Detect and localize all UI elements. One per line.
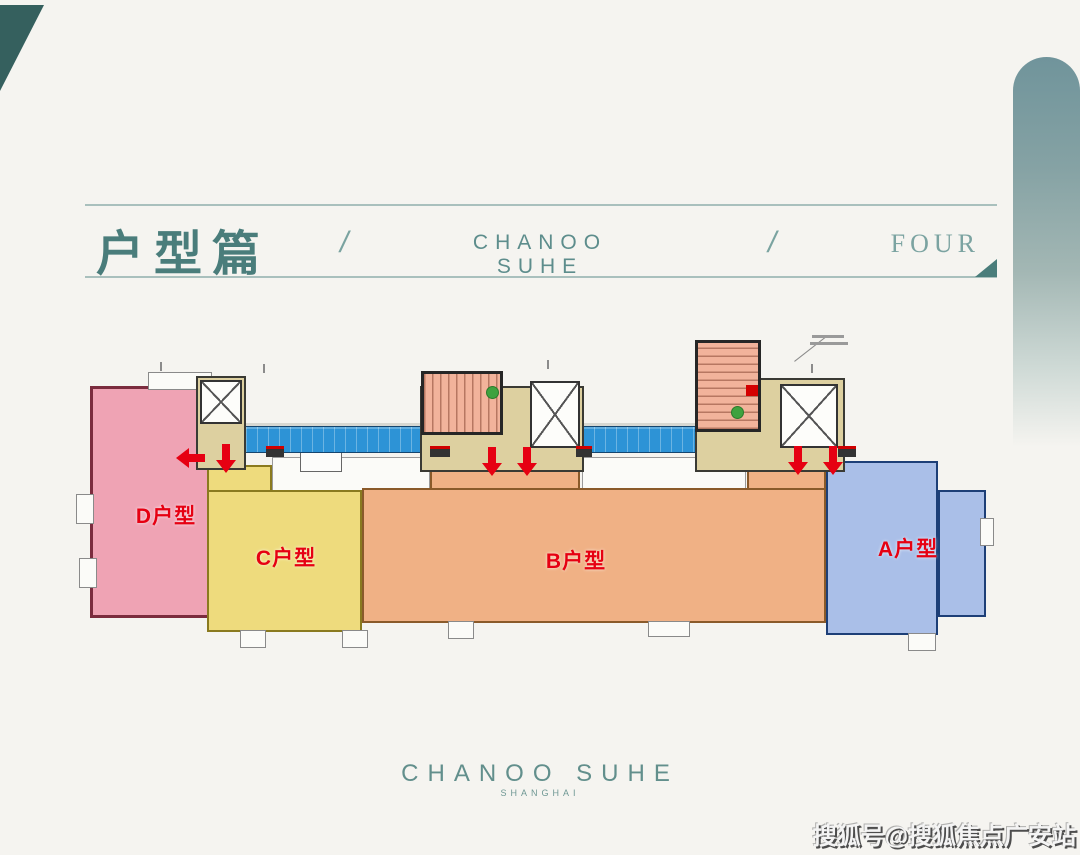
balcony-box (448, 621, 474, 639)
corner-accent-triangle (0, 5, 44, 91)
stair-room (421, 371, 503, 435)
footer-brand: CHANOO SUHE (0, 760, 1080, 788)
balcony-box (908, 633, 936, 651)
unit-label-d: D户型 (118, 500, 214, 530)
corridor-segment (582, 426, 700, 453)
elevator (530, 381, 580, 448)
red-arrow-down (216, 444, 236, 474)
entry-door-box (300, 450, 342, 472)
green-exit-dot (486, 386, 499, 399)
poster-page: 户型篇 / CHANOO SUHE / FOUR (0, 0, 1080, 855)
tick-mark (160, 362, 162, 371)
header-rule-bottom (85, 276, 997, 278)
page-title: 户型篇 (96, 214, 270, 284)
slash-separator-left: / (340, 226, 348, 260)
annotation-leader-line (794, 335, 828, 362)
balcony-box (648, 621, 690, 637)
balcony-box (79, 558, 97, 588)
red-arrow-down (823, 446, 843, 476)
door-threshold (576, 446, 592, 457)
footer-subtitle: SHANGHAI (0, 788, 1080, 798)
header-rule-top (85, 204, 997, 206)
elevator (200, 380, 242, 424)
slash-separator-right: / (768, 226, 776, 260)
chapter-number: FOUR (890, 229, 980, 259)
unit-label-b: B户型 (528, 545, 624, 575)
watermark: 搜狐号@搜狐焦点广安站 (813, 816, 1076, 851)
balcony-box (240, 630, 266, 648)
red-arrow-down (517, 447, 537, 477)
fire-door-marker (746, 385, 758, 396)
red-arrow-down (788, 446, 808, 476)
balcony-box (76, 494, 94, 524)
floor-plan: D户型 C户型 B户型 A户型 (75, 330, 990, 670)
elevator (780, 384, 838, 448)
door-threshold (266, 446, 284, 457)
red-arrow-down (482, 447, 502, 477)
door-threshold (430, 446, 450, 457)
balcony-strip (272, 457, 430, 491)
unit-label-c: C户型 (238, 542, 334, 572)
red-arrow-left (175, 448, 205, 468)
annotation-text-line (810, 342, 848, 345)
balcony-box (980, 518, 994, 546)
tick-mark (811, 364, 813, 373)
annotation-text-line (812, 335, 844, 338)
tick-mark (263, 364, 265, 373)
tick-mark (547, 360, 549, 369)
unit-label-a: A户型 (860, 533, 956, 563)
green-exit-dot (731, 406, 744, 419)
balcony-box (342, 630, 368, 648)
header-corner-triangle (975, 259, 997, 277)
arch-decoration (1013, 57, 1080, 447)
brand-wordmark: CHANOO SUHE (430, 231, 650, 279)
